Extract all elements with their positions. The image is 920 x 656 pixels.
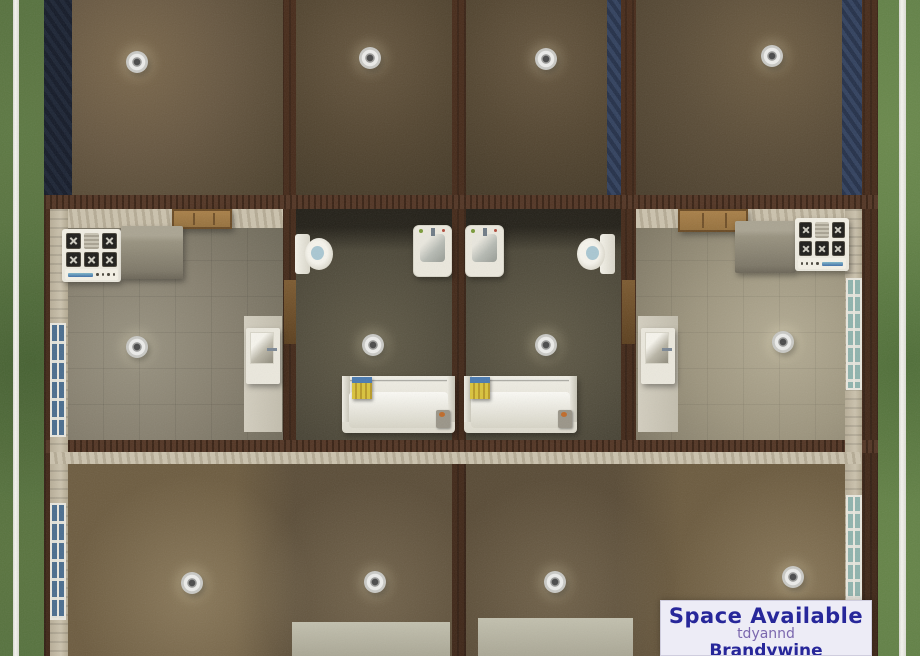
toiletry-item (471, 229, 475, 233)
grass-left (0, 0, 44, 656)
ceiling-lamp[interactable] (359, 47, 381, 69)
ceiling-lamp[interactable] (782, 566, 804, 588)
toiletry-item (442, 229, 445, 232)
lot-status-text: Space Available (661, 605, 871, 627)
stove-vent (815, 222, 828, 238)
living-room-north-wall (50, 452, 862, 464)
toilet-water (586, 246, 599, 260)
wall-horizontal-upper (44, 195, 878, 209)
stove-display (822, 262, 843, 266)
burner (799, 241, 812, 257)
stove-control-panel (65, 269, 118, 280)
fence-rail-right (899, 0, 906, 656)
burner (815, 241, 828, 257)
sink-basin (420, 234, 445, 262)
toiletry-item (419, 229, 423, 233)
ceiling-lamp[interactable] (126, 336, 148, 358)
burner (66, 233, 81, 249)
ceiling-lamp[interactable] (761, 45, 783, 67)
tub-faucet-right (558, 410, 572, 428)
bedroom-top-1 (72, 0, 283, 195)
counter-left[interactable] (121, 226, 183, 279)
kitchen-sink-left[interactable] (246, 328, 280, 384)
ceiling-lamp[interactable] (772, 331, 794, 353)
burner (832, 222, 845, 238)
ceiling-lamp[interactable] (362, 334, 384, 356)
bedroom-top-2 (296, 0, 452, 195)
stove-vent (84, 233, 99, 249)
towel-right (470, 377, 490, 399)
towel-left (352, 377, 372, 399)
counter-right[interactable] (735, 221, 796, 273)
burner (66, 252, 81, 268)
burner (102, 233, 117, 249)
entry-floor-right (478, 618, 633, 656)
tub-faucet-left (436, 410, 450, 428)
stove-control-panel (798, 258, 846, 269)
ceiling-lamp[interactable] (535, 334, 557, 356)
sink-basin (472, 234, 497, 262)
ceiling-lamp[interactable] (544, 571, 566, 593)
toilet-left[interactable] (295, 232, 336, 280)
ceiling-lamp[interactable] (126, 51, 148, 73)
window-west-upper[interactable] (50, 323, 66, 437)
toiletry-item (494, 229, 497, 232)
stove-left[interactable] (62, 229, 121, 282)
toilet-water (311, 246, 324, 260)
window-west-lower[interactable] (50, 503, 66, 620)
fence-rail-left (13, 0, 19, 656)
stove-burners (66, 233, 117, 267)
sink-faucet (483, 228, 487, 236)
lot-creator-text: tdyannd (661, 627, 871, 642)
window-east-lower[interactable] (846, 495, 862, 600)
stove-display (68, 273, 93, 277)
bedroom-top-3 (466, 0, 607, 195)
striped-wallpaper-room4 (842, 0, 862, 195)
burner (84, 252, 99, 268)
ceiling-lamp[interactable] (535, 48, 557, 70)
door-bathroom-right[interactable] (622, 280, 635, 344)
pedestal-sink-right[interactable] (465, 225, 504, 277)
striped-wallpaper-left-edge (44, 0, 72, 195)
window-east-upper[interactable] (846, 278, 862, 390)
ceiling-lamp[interactable] (364, 571, 386, 593)
striped-wallpaper-room3 (607, 0, 621, 195)
door-bathroom-left[interactable] (284, 280, 296, 344)
sink-faucet (267, 348, 277, 351)
sims-lot-top-view: Space Available tdyannd Brandywine Apart… (0, 0, 920, 656)
stove-burners (799, 222, 845, 256)
lot-name-text: Brandywine Apartments (661, 642, 871, 656)
sink-faucet (662, 348, 672, 351)
pedestal-sink-left[interactable] (413, 225, 452, 277)
kitchen-sink-right[interactable] (641, 328, 675, 384)
lot-info-overlay: Space Available tdyannd Brandywine Apart… (660, 600, 872, 656)
ceiling-lamp[interactable] (181, 572, 203, 594)
burner (102, 252, 117, 268)
toilet-right[interactable] (574, 232, 615, 280)
burner (832, 241, 845, 257)
stove-right[interactable] (795, 218, 849, 271)
sink-faucet (431, 228, 435, 236)
burner (799, 222, 812, 238)
bedroom-top-4 (636, 0, 842, 195)
entry-floor-left (292, 622, 450, 656)
